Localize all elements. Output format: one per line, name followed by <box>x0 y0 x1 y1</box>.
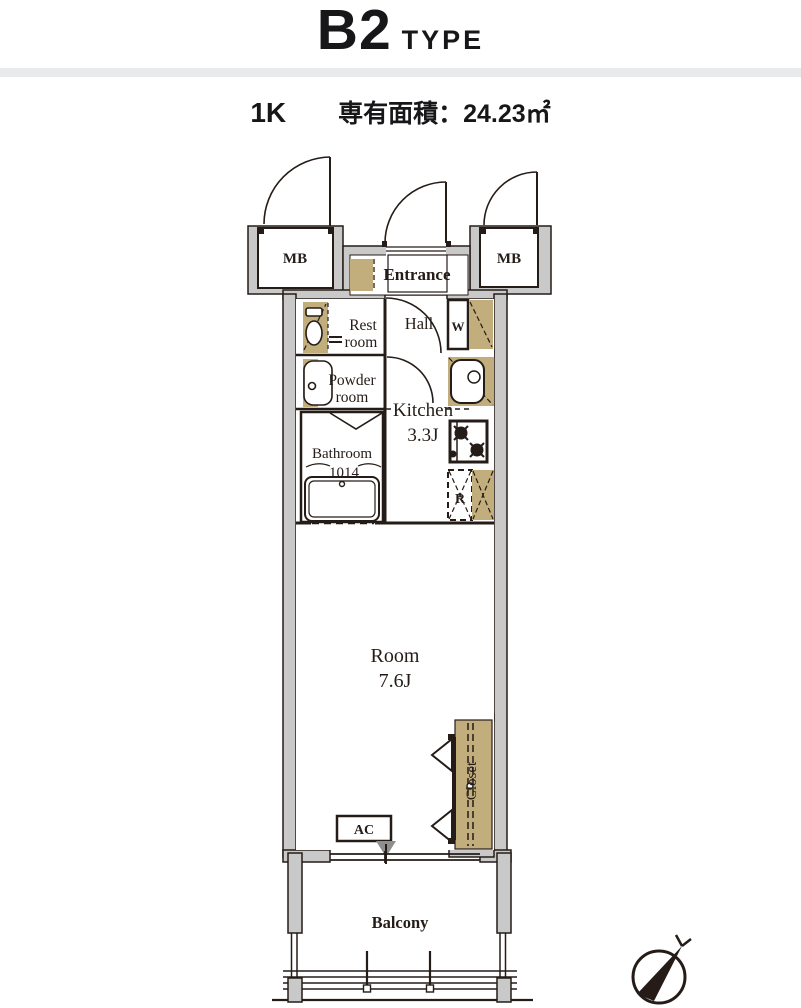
mb-left-label: MB <box>283 251 307 267</box>
compass-icon <box>633 935 691 1003</box>
kitchen-sink-symbol <box>451 360 484 403</box>
room-label: Room <box>371 645 420 667</box>
fridge-label: R <box>455 492 466 507</box>
balcony-floor <box>302 865 497 1000</box>
restroom-label-2: room <box>345 334 378 351</box>
mb-right-label: MB <box>497 251 521 267</box>
shoe-cabinet <box>350 259 373 291</box>
bathroom-size-label: 1014 <box>329 465 360 481</box>
powder-label-2: room <box>336 389 369 406</box>
room-size-label: 7.6J <box>379 670 412 692</box>
ac-label: AC <box>354 823 374 838</box>
powder-label-1: Powder <box>328 372 376 389</box>
stove-symbol <box>450 421 488 462</box>
floor-plan: MB MB Entrance Rest room Hall W Powder r… <box>0 0 801 1008</box>
entrance-label: Entrance <box>383 265 451 284</box>
closet-label: Closet <box>464 761 480 800</box>
balcony-label: Balcony <box>372 913 430 932</box>
bathtub-symbol <box>305 477 379 521</box>
toilet-symbol <box>306 308 322 345</box>
restroom-label-1: Rest <box>349 317 377 334</box>
bathroom-label: Bathroom <box>312 446 372 462</box>
kitchen-label: Kitchen <box>393 400 454 421</box>
washer-label: W <box>452 319 465 334</box>
hall-label: Hall <box>405 314 434 333</box>
kitchen-size-label: 3.3J <box>407 425 438 446</box>
